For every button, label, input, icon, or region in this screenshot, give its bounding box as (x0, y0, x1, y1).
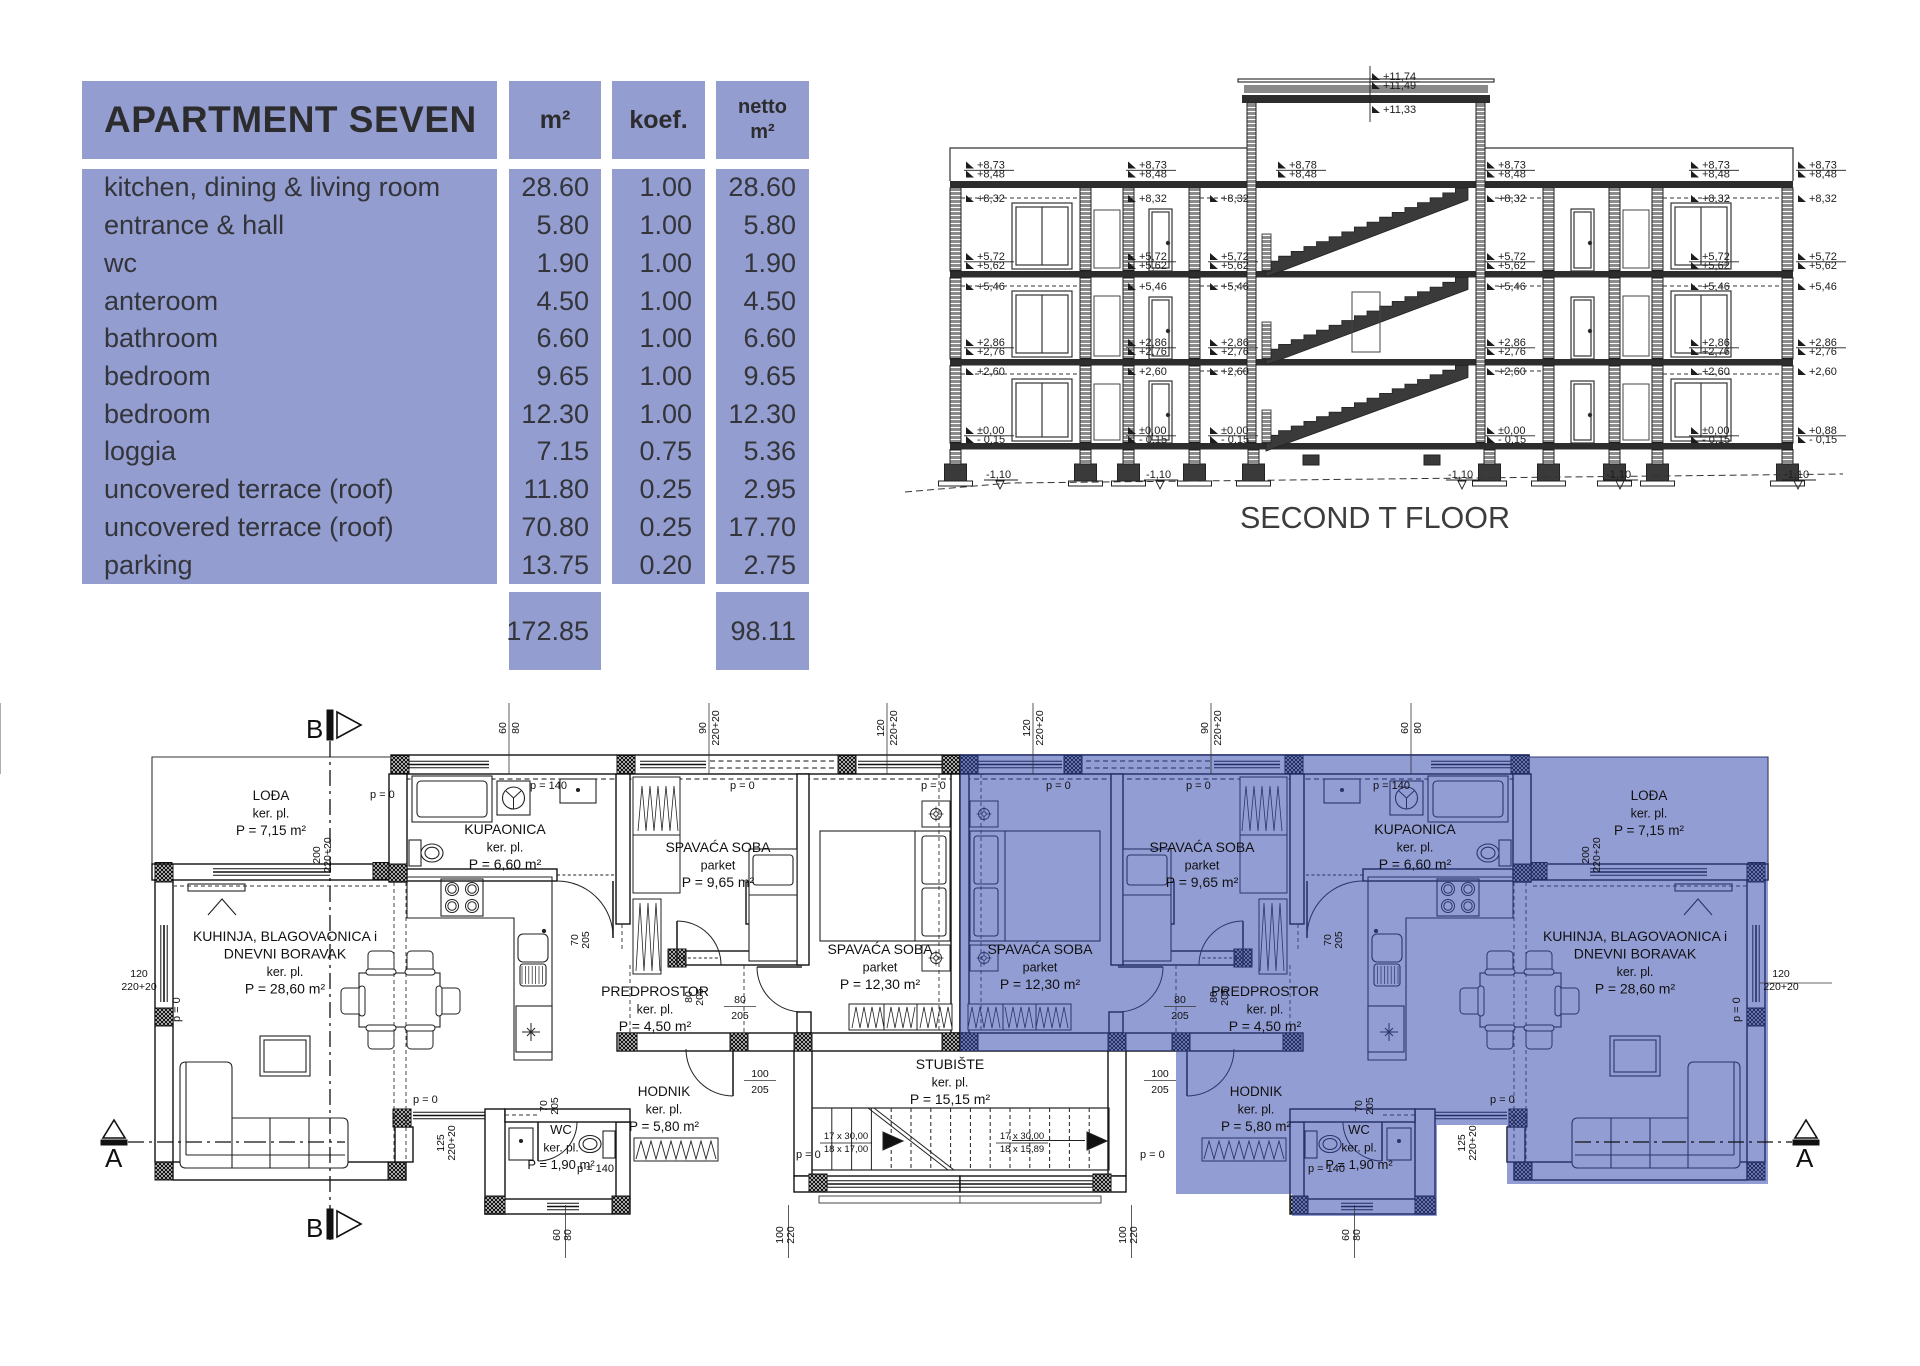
svg-text:LOĐA: LOĐA (253, 788, 290, 803)
svg-text:p = 0: p = 0 (370, 789, 395, 801)
svg-text:KUHINJA, BLAGOVAONICA i: KUHINJA, BLAGOVAONICA i (193, 928, 377, 944)
svg-text:+2,60: +2,60 (1221, 366, 1249, 378)
svg-text:+2,60: +2,60 (1498, 366, 1526, 378)
svg-text:P = 28,60 m²: P = 28,60 m² (1595, 981, 1676, 997)
svg-text:80: 80 (734, 994, 746, 1006)
svg-text:220+20: 220+20 (446, 1125, 458, 1160)
svg-text:220+20: 220+20 (121, 981, 156, 993)
svg-text:DNEVNI BORAVAK: DNEVNI BORAVAK (1574, 946, 1697, 962)
svg-text:P = 12,30 m²: P = 12,30 m² (1000, 976, 1081, 992)
svg-text:- 0,15: - 0,15 (1809, 434, 1837, 446)
svg-text:80: 80 (510, 722, 522, 734)
svg-text:220+20: 220+20 (1763, 981, 1798, 993)
svg-text:205: 205 (731, 1010, 749, 1022)
svg-text:+8,48: +8,48 (1289, 169, 1317, 181)
svg-text:205: 205 (1151, 1084, 1169, 1096)
svg-text:+5,46: +5,46 (1498, 281, 1526, 293)
svg-text:p = 140: p = 140 (1308, 1163, 1345, 1175)
svg-text:ker. pl.: ker. pl. (637, 1003, 674, 1017)
svg-text:WC: WC (550, 1122, 572, 1137)
svg-text:+8,32: +8,32 (977, 193, 1005, 205)
svg-text:ker. pl.: ker. pl. (646, 1103, 683, 1117)
svg-text:P = 5,80 m²: P = 5,80 m² (629, 1119, 699, 1134)
svg-text:p = 0: p = 0 (921, 780, 946, 792)
svg-text:+2,76: +2,76 (1702, 346, 1730, 358)
svg-text:P = 28,60 m²: P = 28,60 m² (245, 981, 326, 997)
svg-text:+2,76: +2,76 (1139, 346, 1167, 358)
svg-text:+8,48: +8,48 (1139, 169, 1167, 181)
svg-text:205: 205 (549, 1097, 561, 1115)
svg-text:220+20: 220+20 (1467, 1125, 1479, 1160)
svg-text:A: A (105, 1143, 123, 1173)
svg-text:parket: parket (863, 961, 898, 975)
svg-text:-1,10: -1,10 (1146, 469, 1171, 481)
svg-text:18 x 17,00: 18 x 17,00 (824, 1144, 868, 1155)
svg-text:+8,48: +8,48 (977, 169, 1005, 181)
svg-text:ker. pl.: ker. pl. (1247, 1003, 1284, 1017)
svg-text:ker. pl.: ker. pl. (253, 807, 290, 821)
svg-text:parket: parket (1185, 859, 1220, 873)
svg-text:+5,46: +5,46 (1702, 281, 1730, 293)
svg-text:+5,62: +5,62 (1809, 260, 1837, 272)
svg-text:P = 9,65 m²: P = 9,65 m² (1166, 874, 1239, 890)
svg-text:+8,32: +8,32 (1221, 193, 1249, 205)
svg-text:p = 0: p = 0 (1490, 1094, 1515, 1106)
svg-text:ker. pl.: ker. pl. (932, 1076, 969, 1090)
svg-text:- 0,15: - 0,15 (1702, 434, 1730, 446)
svg-text:+5,46: +5,46 (1221, 281, 1249, 293)
svg-text:P = 9,65 m²: P = 9,65 m² (682, 874, 755, 890)
svg-text:205: 205 (1364, 1097, 1376, 1115)
svg-text:205: 205 (751, 1084, 769, 1096)
svg-text:p = 0: p = 0 (1140, 1149, 1165, 1161)
svg-text:+2,76: +2,76 (977, 346, 1005, 358)
svg-text:+5,62: +5,62 (1498, 260, 1526, 272)
svg-text:P = 6,60 m²: P = 6,60 m² (469, 856, 542, 872)
svg-text:B: B (306, 714, 323, 744)
svg-text:100: 100 (751, 1068, 769, 1080)
svg-text:+2,76: +2,76 (1221, 346, 1249, 358)
svg-text:220+20: 220+20 (1212, 710, 1224, 745)
svg-text:p = 140: p = 140 (1373, 780, 1410, 792)
svg-text:80: 80 (562, 1229, 574, 1241)
svg-text:60: 60 (497, 722, 509, 734)
svg-text:+5,46: +5,46 (977, 281, 1005, 293)
svg-text:SPAVAĆA SOBA: SPAVAĆA SOBA (1149, 839, 1255, 855)
svg-text:220: 220 (1128, 1226, 1140, 1244)
svg-text:-1,10: -1,10 (1448, 469, 1473, 481)
svg-text:220+20: 220+20 (1034, 710, 1046, 745)
svg-text:P = 4,50 m²: P = 4,50 m² (1229, 1018, 1302, 1034)
svg-text:205: 205 (1219, 988, 1231, 1006)
svg-text:WC: WC (1348, 1122, 1370, 1137)
svg-text:+2,60: +2,60 (1809, 366, 1837, 378)
svg-text:+5,46: +5,46 (1139, 281, 1167, 293)
svg-text:+11,33: +11,33 (1383, 104, 1416, 116)
svg-text:+2,60: +2,60 (1702, 366, 1730, 378)
svg-text:- 0,15: - 0,15 (1221, 434, 1249, 446)
svg-text:- 0,15: - 0,15 (977, 434, 1005, 446)
svg-text:+8,32: +8,32 (1809, 193, 1837, 205)
svg-text:+8,48: +8,48 (1809, 169, 1837, 181)
svg-text:205: 205 (1171, 1010, 1189, 1022)
svg-text:P = 7,15 m²: P = 7,15 m² (1614, 823, 1684, 838)
svg-text:ker. pl.: ker. pl. (487, 841, 524, 855)
svg-text:220: 220 (785, 1226, 797, 1244)
svg-text:90: 90 (1199, 722, 1211, 734)
svg-text:220+20: 220+20 (888, 710, 900, 745)
svg-text:SECOND T FLOOR: SECOND T FLOOR (1240, 501, 1510, 535)
svg-text:+8,32: +8,32 (1702, 193, 1730, 205)
svg-text:B: B (306, 1213, 323, 1243)
svg-text:A: A (1796, 1143, 1814, 1173)
svg-text:120: 120 (130, 968, 148, 980)
svg-text:+11,49: +11,49 (1383, 80, 1416, 92)
svg-text:220+20: 220+20 (1591, 837, 1603, 872)
svg-text:SPAVAĆA SOBA: SPAVAĆA SOBA (827, 941, 933, 957)
svg-text:STUBIŠTE: STUBIŠTE (916, 1056, 984, 1072)
svg-text:80: 80 (1351, 1229, 1363, 1241)
svg-text:90: 90 (697, 722, 709, 734)
svg-text:p = 0: p = 0 (413, 1094, 438, 1106)
svg-text:-1,10: -1,10 (1784, 469, 1809, 481)
svg-text:P = 7,15 m²: P = 7,15 m² (236, 823, 306, 838)
svg-text:+2,76: +2,76 (1809, 346, 1837, 358)
svg-text:LOĐA: LOĐA (1631, 788, 1668, 803)
svg-text:p = 0: p = 0 (1046, 780, 1071, 792)
svg-text:p = 0: p = 0 (796, 1149, 821, 1161)
svg-text:+5,62: +5,62 (1221, 260, 1249, 272)
svg-text:205: 205 (1333, 931, 1345, 949)
svg-text:HODNIK: HODNIK (638, 1084, 691, 1099)
svg-text:80: 80 (1412, 722, 1424, 734)
svg-text:+5,62: +5,62 (977, 260, 1005, 272)
svg-text:P = 6,60 m²: P = 6,60 m² (1379, 856, 1452, 872)
svg-text:P = 15,15 m²: P = 15,15 m² (910, 1091, 991, 1107)
svg-text:- 0,15: - 0,15 (1498, 434, 1526, 446)
svg-text:SPAVAĆA SOBA: SPAVAĆA SOBA (665, 839, 771, 855)
svg-text:120: 120 (1772, 968, 1790, 980)
svg-text:ker. pl.: ker. pl. (1617, 965, 1654, 979)
svg-text:p = 0: p = 0 (171, 997, 183, 1022)
svg-text:+8,48: +8,48 (1498, 169, 1526, 181)
svg-text:+2,60: +2,60 (1139, 366, 1167, 378)
svg-text:P = 12,30 m²: P = 12,30 m² (840, 976, 921, 992)
svg-text:P = 4,50 m²: P = 4,50 m² (619, 1018, 692, 1034)
svg-text:-1,10: -1,10 (986, 469, 1011, 481)
svg-text:KUPAONICA: KUPAONICA (464, 821, 546, 837)
svg-text:KUHINJA, BLAGOVAONICA i: KUHINJA, BLAGOVAONICA i (1543, 928, 1727, 944)
svg-text:220+20: 220+20 (322, 837, 334, 872)
svg-text:+5,46: +5,46 (1809, 281, 1837, 293)
svg-text:ker. pl.: ker. pl. (1341, 1141, 1376, 1155)
svg-text:p = 0: p = 0 (1731, 997, 1743, 1022)
svg-text:p = 140: p = 140 (530, 780, 567, 792)
svg-text:parket: parket (1023, 961, 1058, 975)
svg-text:18 x 15,89: 18 x 15,89 (1000, 1144, 1044, 1155)
svg-text:+8,48: +8,48 (1702, 169, 1730, 181)
svg-text:220+20: 220+20 (710, 710, 722, 745)
svg-text:+2,76: +2,76 (1498, 346, 1526, 358)
svg-text:+5,62: +5,62 (1139, 260, 1167, 272)
svg-text:60: 60 (1399, 722, 1411, 734)
svg-text:ker. pl.: ker. pl. (267, 965, 304, 979)
svg-text:DNEVNI BORAVAK: DNEVNI BORAVAK (224, 946, 347, 962)
svg-text:120: 120 (875, 719, 887, 737)
svg-text:100: 100 (1151, 1068, 1169, 1080)
svg-text:+5,62: +5,62 (1702, 260, 1730, 272)
svg-text:ker. pl.: ker. pl. (1397, 841, 1434, 855)
svg-text:ker. pl.: ker. pl. (543, 1141, 578, 1155)
svg-text:p = 0: p = 0 (730, 780, 755, 792)
svg-text:120: 120 (1021, 719, 1033, 737)
svg-text:ker. pl.: ker. pl. (1238, 1103, 1275, 1117)
svg-text:+8,32: +8,32 (1139, 193, 1167, 205)
svg-text:17 x 30,00: 17 x 30,00 (1000, 1131, 1044, 1142)
svg-text:205: 205 (694, 988, 706, 1006)
svg-text:+2,60: +2,60 (977, 366, 1005, 378)
svg-text:KUPAONICA: KUPAONICA (1374, 821, 1456, 837)
svg-text:17 x 30,00: 17 x 30,00 (824, 1131, 868, 1142)
svg-text:ker. pl.: ker. pl. (1631, 807, 1668, 821)
svg-text:- 0,15: - 0,15 (1139, 434, 1167, 446)
svg-text:parket: parket (701, 859, 736, 873)
svg-text:HODNIK: HODNIK (1230, 1084, 1283, 1099)
svg-text:80: 80 (1174, 994, 1186, 1006)
svg-text:+8,32: +8,32 (1498, 193, 1526, 205)
svg-text:-1,10: -1,10 (1606, 469, 1631, 481)
svg-text:205: 205 (580, 931, 592, 949)
svg-text:p = 140: p = 140 (577, 1163, 614, 1175)
svg-text:SPAVAĆA SOBA: SPAVAĆA SOBA (987, 941, 1093, 957)
svg-text:P = 5,80 m²: P = 5,80 m² (1221, 1119, 1291, 1134)
svg-text:p = 0: p = 0 (1186, 780, 1211, 792)
